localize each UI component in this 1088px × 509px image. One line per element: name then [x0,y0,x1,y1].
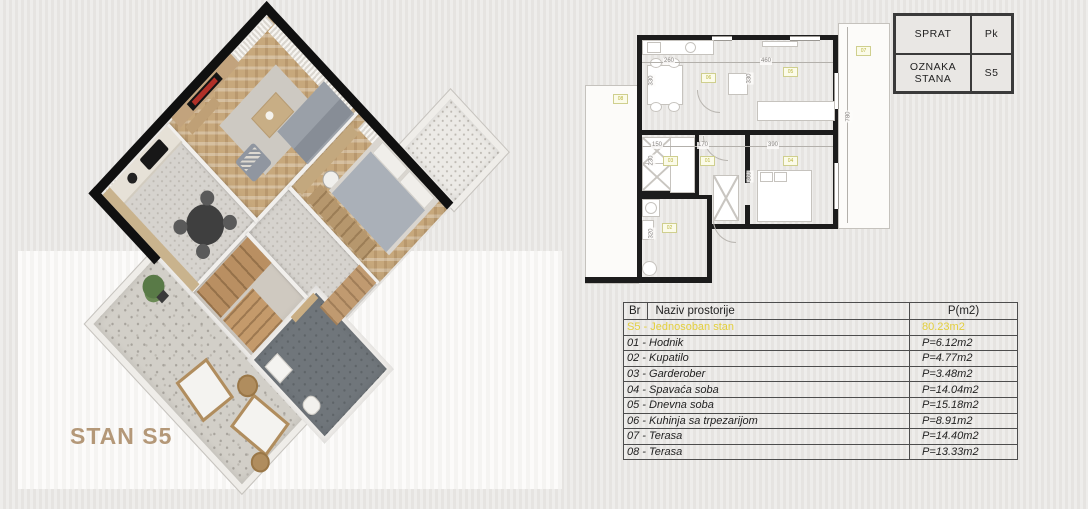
window [834,163,839,209]
table-row: 01 - Hodnik P=6.12m2 [624,335,1017,351]
door-arc [713,220,736,243]
wall-hall-lower [745,205,750,229]
dimension-line [642,146,833,147]
table-row: 07 - Terasa P=14.40m2 [624,428,1017,444]
table-row: 02 - Kupatilo P=4.77m2 [624,350,1017,366]
room-badge-terrace-right: 07 [856,46,871,56]
floor-plan-2d: 260 460 330 330 780 150 170 390 230 360 … [585,15,888,300]
wardrobe-2d [713,175,739,221]
dim-bathroom-depth: 320 [649,227,656,239]
table-header-br: Br [627,303,648,319]
table-row: 08 - Terasa P=13.33m2 [624,444,1017,460]
room-badge-bathroom: 02 [662,223,677,233]
dim-garderober-depth: 230 [649,154,656,166]
table-summary-row: S5 - Jednosoban stan 80.23m2 [624,319,1017,335]
washing-machine-drum [645,202,657,214]
chair-2d [668,102,680,112]
floorplan-sheet: STAN S5 [0,0,1088,509]
info-value-floor: Pk [971,15,1012,54]
dim-bedroom-depth: 360 [747,170,754,182]
chair-2d [650,102,662,112]
wall-mid [637,130,838,135]
sofa-2d [757,101,835,121]
chair-2d [650,58,662,68]
dim-kitchen-width: 260 [663,58,675,65]
room-badge-kitchen: 06 [701,73,716,83]
table-row: 04 - Spavaća soba P=14.04m2 [624,381,1017,397]
dim-terrace-right: 780 [846,110,853,122]
wall-bottom [585,277,712,283]
room-badge-bedroom: 04 [783,156,798,166]
tv-2d [762,41,798,47]
window [712,36,732,41]
table-header-area: P(m2) [909,303,1017,319]
table-header-name: Br Naziv prostorije [624,303,909,319]
dim-living-depth: 330 [747,72,754,84]
table-row: 06 - Kuhinja sa trpezarijom P=8.91m2 [624,413,1017,429]
apartment-title: STAN S5 [70,423,172,450]
unit-info-box: SPRAT Pk OZNAKA STANA S5 [893,13,1014,94]
info-value-unit: S5 [971,54,1012,93]
summary-name: S5 - Jednosoban stan [624,320,909,335]
dim-bedroom-width: 390 [767,142,779,149]
stove-2d [647,42,661,53]
dim-kitchen-depth: 330 [649,74,656,86]
info-label-unit: OZNAKA STANA [895,54,971,93]
table-row: 05 - Dnevna soba P=15.18m2 [624,397,1017,413]
armchair-2d [728,73,748,95]
terrace-left-2d [585,85,639,284]
pillow-2d [760,172,773,182]
door-arc [697,90,720,113]
room-badge-garderober: 03 [663,156,678,166]
room-badge-terrace-left: 08 [613,94,628,104]
room-area-table: Br Naziv prostorije P(m2) S5 - Jednosoba… [623,302,1018,460]
table-row: 03 - Garderober P=3.48m2 [624,366,1017,382]
pillow-2d [774,172,787,182]
room-badge-hall: 01 [700,156,715,166]
info-label-floor: SPRAT [895,15,971,54]
dim-living-width: 460 [760,58,772,65]
wardrobe-2d [642,163,672,191]
dim-garderober-width: 150 [651,142,663,149]
sink-2d [685,42,696,53]
summary-area: 80.23m2 [909,320,1017,335]
toilet-2d [642,261,657,276]
dimension-line [847,27,848,223]
wall-bath-right [707,197,712,283]
table-header-row: Br Naziv prostorije P(m2) [624,303,1017,319]
dim-hall-width: 170 [697,142,709,149]
room-badge-living: 05 [783,67,798,77]
